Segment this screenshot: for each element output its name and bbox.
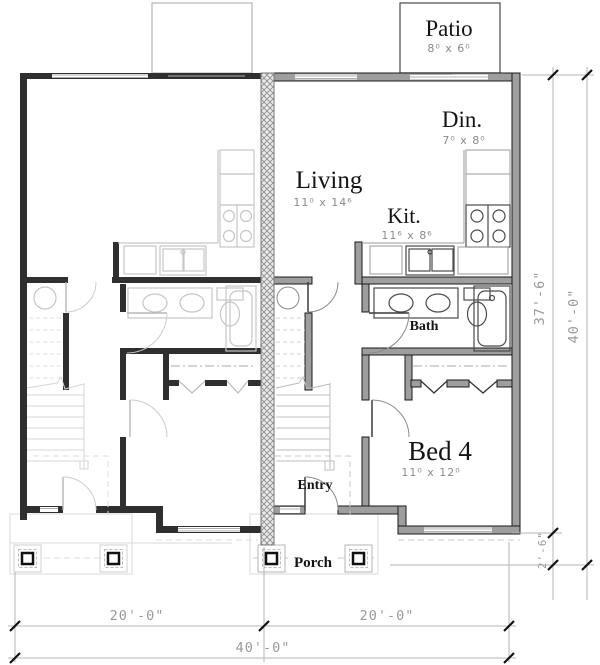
porch-column xyxy=(14,545,41,572)
porch-column xyxy=(345,545,372,572)
bathtub xyxy=(226,286,256,351)
party-wall xyxy=(261,73,274,545)
room-size-din: 7⁰ x 8⁰ xyxy=(442,134,485,147)
pedestal-sink xyxy=(277,287,299,309)
bathtub xyxy=(474,286,510,351)
dishwasher xyxy=(458,247,508,274)
left-unit xyxy=(20,73,262,540)
dim-bottom-right: 20'-0" xyxy=(360,608,415,624)
room-size-living: 11⁰ x 14⁶ xyxy=(293,196,352,209)
bath-door xyxy=(369,313,409,353)
window xyxy=(295,75,357,80)
stove xyxy=(466,205,510,247)
room-label-din: Din. xyxy=(442,107,482,132)
bath-door xyxy=(127,313,167,353)
dim-right-total: 40'-0" xyxy=(566,289,582,344)
bedroom-door xyxy=(372,400,409,437)
pedestal-sink xyxy=(34,287,56,309)
dim-bottom-left: 20'-0" xyxy=(110,608,165,624)
door xyxy=(66,282,96,312)
room-label-patio: Patio xyxy=(425,16,472,41)
patio-sliding-door xyxy=(410,75,488,80)
refrigerator xyxy=(220,150,254,205)
floor-plan-page: 37'-6" 40'-0" 2'-6" 20'-0" 20'-0" 40'-0"… xyxy=(0,0,600,665)
room-size-patio: 8⁰ x 6⁰ xyxy=(427,42,470,55)
refrigerator xyxy=(466,150,510,205)
room-label-kit: Kit. xyxy=(387,203,421,228)
dim-bottom-total: 40'-0" xyxy=(236,640,291,656)
room-label-bed4: Bed 4 xyxy=(408,436,472,466)
room-label-bath: Bath xyxy=(410,319,439,334)
stove xyxy=(220,205,254,247)
porch-column xyxy=(100,545,127,572)
room-labels: Patio 8⁰ x 6⁰ Din. 7⁰ x 8⁰ Living 11⁰ x … xyxy=(293,16,485,571)
kitchen-counter xyxy=(118,150,218,275)
front-door xyxy=(63,477,96,510)
porch-left xyxy=(10,514,232,574)
porch-column xyxy=(258,545,285,572)
room-label-living: Living xyxy=(296,167,363,194)
room-size-bed4: 11⁰ x 12⁰ xyxy=(401,466,460,479)
room-size-kit: 11⁶ x 8⁶ xyxy=(381,229,432,242)
toilet xyxy=(464,288,490,326)
kitchen-counter xyxy=(362,150,508,275)
bedroom-door xyxy=(130,400,167,437)
room-label-porch: Porch xyxy=(294,555,333,571)
door xyxy=(308,282,338,312)
dim-right-lower: 2'-6" xyxy=(536,531,549,569)
patio-left xyxy=(152,3,252,73)
room-label-entry: Entry xyxy=(298,478,333,493)
closet-bifold-doors xyxy=(171,366,255,393)
dim-right-upper: 37'-6" xyxy=(532,271,548,326)
floor-plan-canvas: 37'-6" 40'-0" 2'-6" 20'-0" 20'-0" 40'-0"… xyxy=(0,0,600,665)
